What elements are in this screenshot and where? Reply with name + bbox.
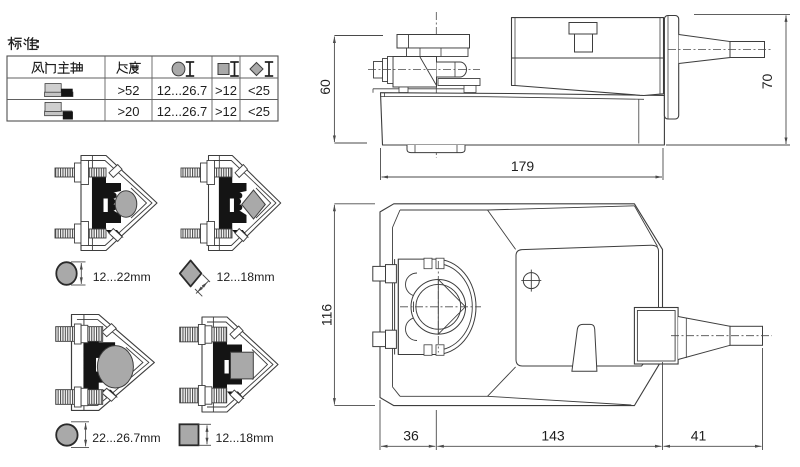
svg-text:143: 143: [541, 428, 565, 444]
svg-text:70: 70: [759, 74, 775, 90]
svg-text:41: 41: [691, 428, 707, 444]
svg-text:60: 60: [317, 79, 333, 95]
svg-text:12...26.7: 12...26.7: [157, 104, 208, 119]
svg-text:>12: >12: [215, 104, 237, 119]
svg-text:>12: >12: [215, 83, 237, 98]
svg-text:12...26.7: 12...26.7: [157, 83, 208, 98]
svg-text:22...26.7mm: 22...26.7mm: [92, 431, 160, 445]
svg-text:12...18mm: 12...18mm: [217, 270, 275, 284]
svg-text:12...22mm: 12...22mm: [93, 270, 151, 284]
svg-text:>20: >20: [117, 104, 139, 119]
svg-text:36: 36: [403, 428, 419, 444]
svg-text:>52: >52: [117, 83, 139, 98]
svg-text:179: 179: [511, 158, 535, 174]
svg-text:12...18mm: 12...18mm: [216, 431, 274, 445]
svg-text:116: 116: [319, 304, 335, 327]
svg-text:<25: <25: [248, 83, 270, 98]
svg-text:<25: <25: [248, 104, 270, 119]
